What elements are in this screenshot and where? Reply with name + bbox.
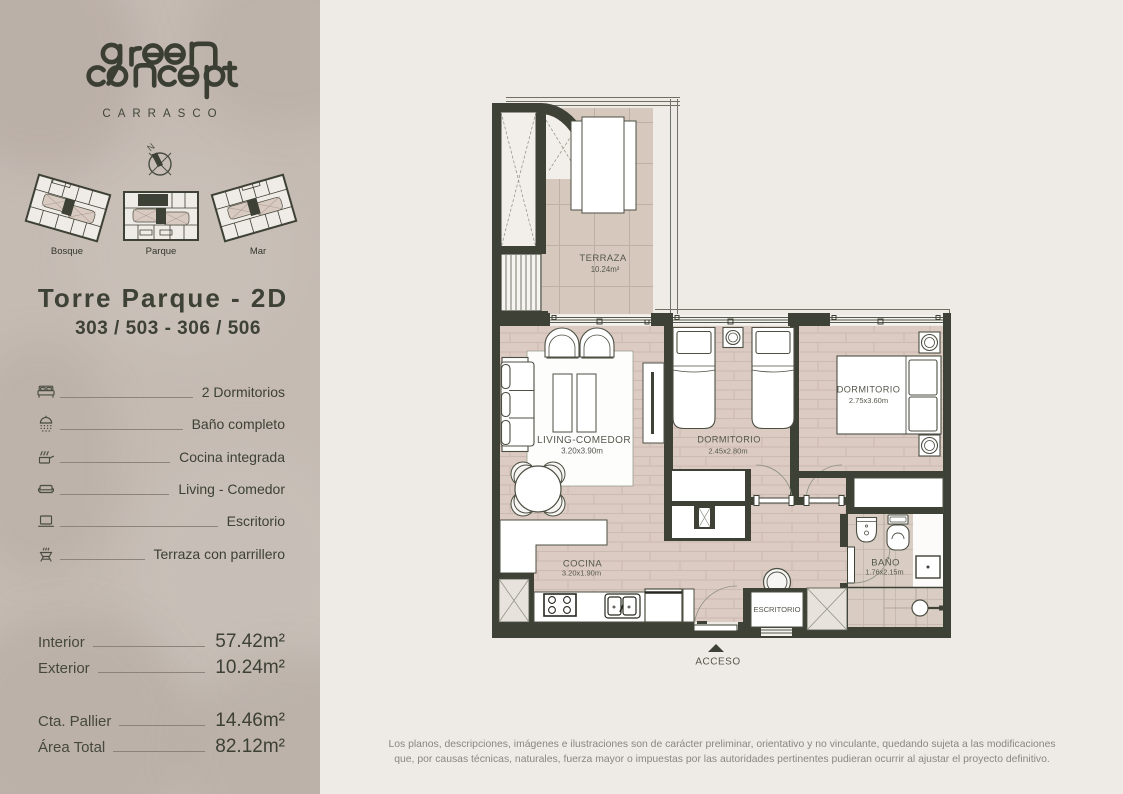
- svg-text:DORMITORIO: DORMITORIO: [697, 435, 761, 445]
- svg-text:10.24m²: 10.24m²: [591, 265, 620, 274]
- svg-text:3.20x3.90m: 3.20x3.90m: [561, 447, 603, 456]
- svg-text:3.20x1.90m: 3.20x1.90m: [562, 569, 601, 578]
- svg-text:ESCRITORIO: ESCRITORIO: [753, 605, 800, 614]
- svg-text:TERRAZA: TERRAZA: [579, 253, 626, 264]
- svg-text:DORMITORIO: DORMITORIO: [837, 385, 901, 395]
- svg-text:2.75x3.60m: 2.75x3.60m: [849, 396, 888, 405]
- svg-text:1.76x2.15m: 1.76x2.15m: [865, 568, 903, 577]
- svg-text:2.45x2.80m: 2.45x2.80m: [708, 447, 747, 456]
- svg-text:LIVING-COMEDOR: LIVING-COMEDOR: [537, 435, 631, 446]
- svg-text:ACCESO: ACCESO: [695, 657, 740, 668]
